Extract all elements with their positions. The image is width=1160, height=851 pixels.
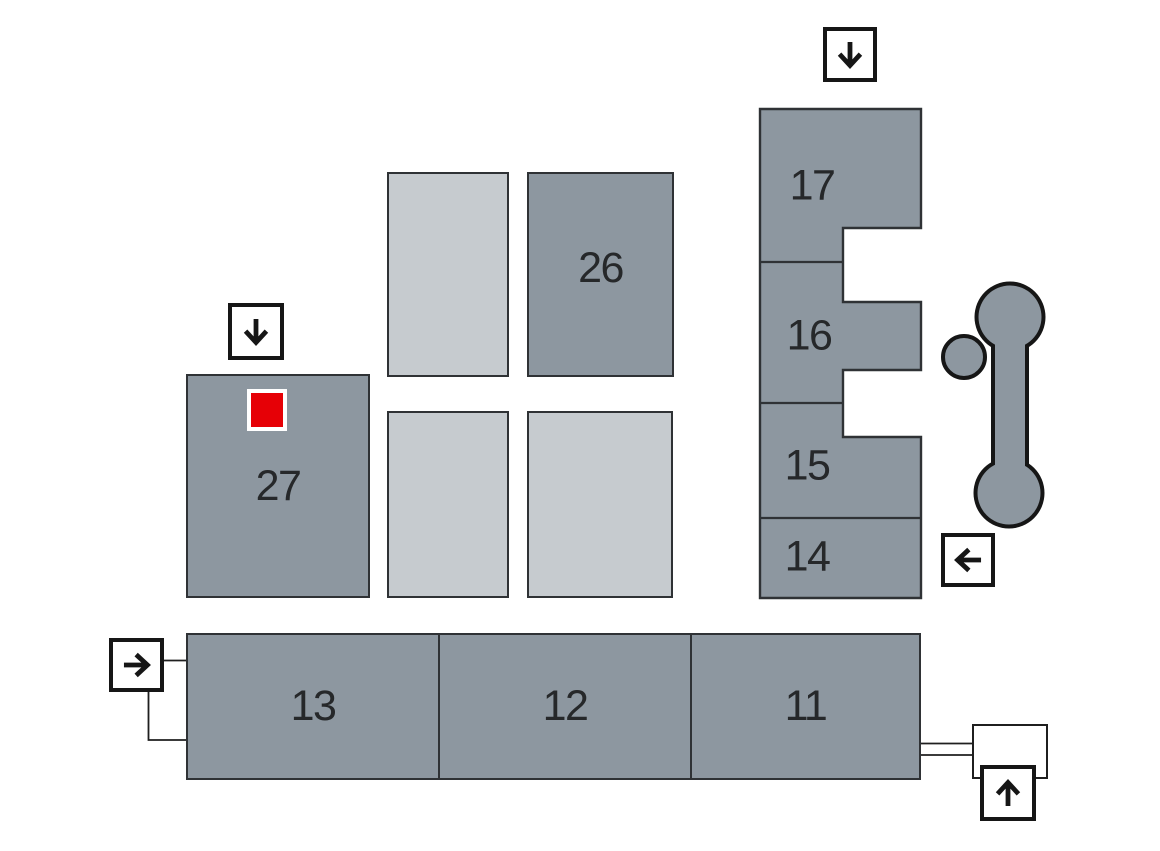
hall-11-label: 11 (785, 685, 827, 728)
hall-17-label: 17 (790, 165, 835, 208)
marker-red-square (251, 393, 283, 427)
hall-16-label: 16 (787, 315, 832, 358)
down-arrow-icon (830, 35, 870, 75)
entrance-right-side (941, 533, 995, 587)
hall-14-label: 14 (785, 536, 830, 579)
exhibition-map: 26 27 13 12 11 17 16 15 14 (0, 0, 1160, 851)
hall-26-label: 26 (578, 247, 623, 290)
right-arrow-icon (117, 645, 157, 685)
hall-11[interactable]: 11 (692, 635, 919, 778)
booth-location-marker[interactable] (247, 389, 287, 431)
entrance-top-right (823, 27, 877, 82)
entrance-hall-27 (228, 303, 284, 360)
entrance-path-right (921, 744, 974, 756)
secondary-building (527, 411, 673, 598)
hall-13-label: 13 (291, 685, 336, 728)
secondary-building (387, 172, 509, 377)
hall-26[interactable]: 26 (527, 172, 674, 377)
hall-27-label: 27 (256, 465, 301, 508)
down-arrow-icon (236, 312, 276, 352)
small-round-building (943, 336, 985, 378)
hall-row-11-13: 13 12 11 (186, 633, 921, 780)
hall-block-14-17[interactable] (760, 109, 921, 598)
hall-13[interactable]: 13 (188, 635, 438, 778)
hall-12[interactable]: 12 (438, 635, 692, 778)
entrance-bottom-right (980, 765, 1036, 821)
hall-15-label: 15 (785, 445, 830, 488)
left-arrow-icon (948, 540, 988, 580)
hall-12-label: 12 (543, 685, 588, 728)
tower-landmark (974, 282, 1046, 529)
entrance-left-side (109, 638, 164, 692)
up-arrow-icon (988, 773, 1028, 813)
secondary-building (387, 411, 509, 598)
